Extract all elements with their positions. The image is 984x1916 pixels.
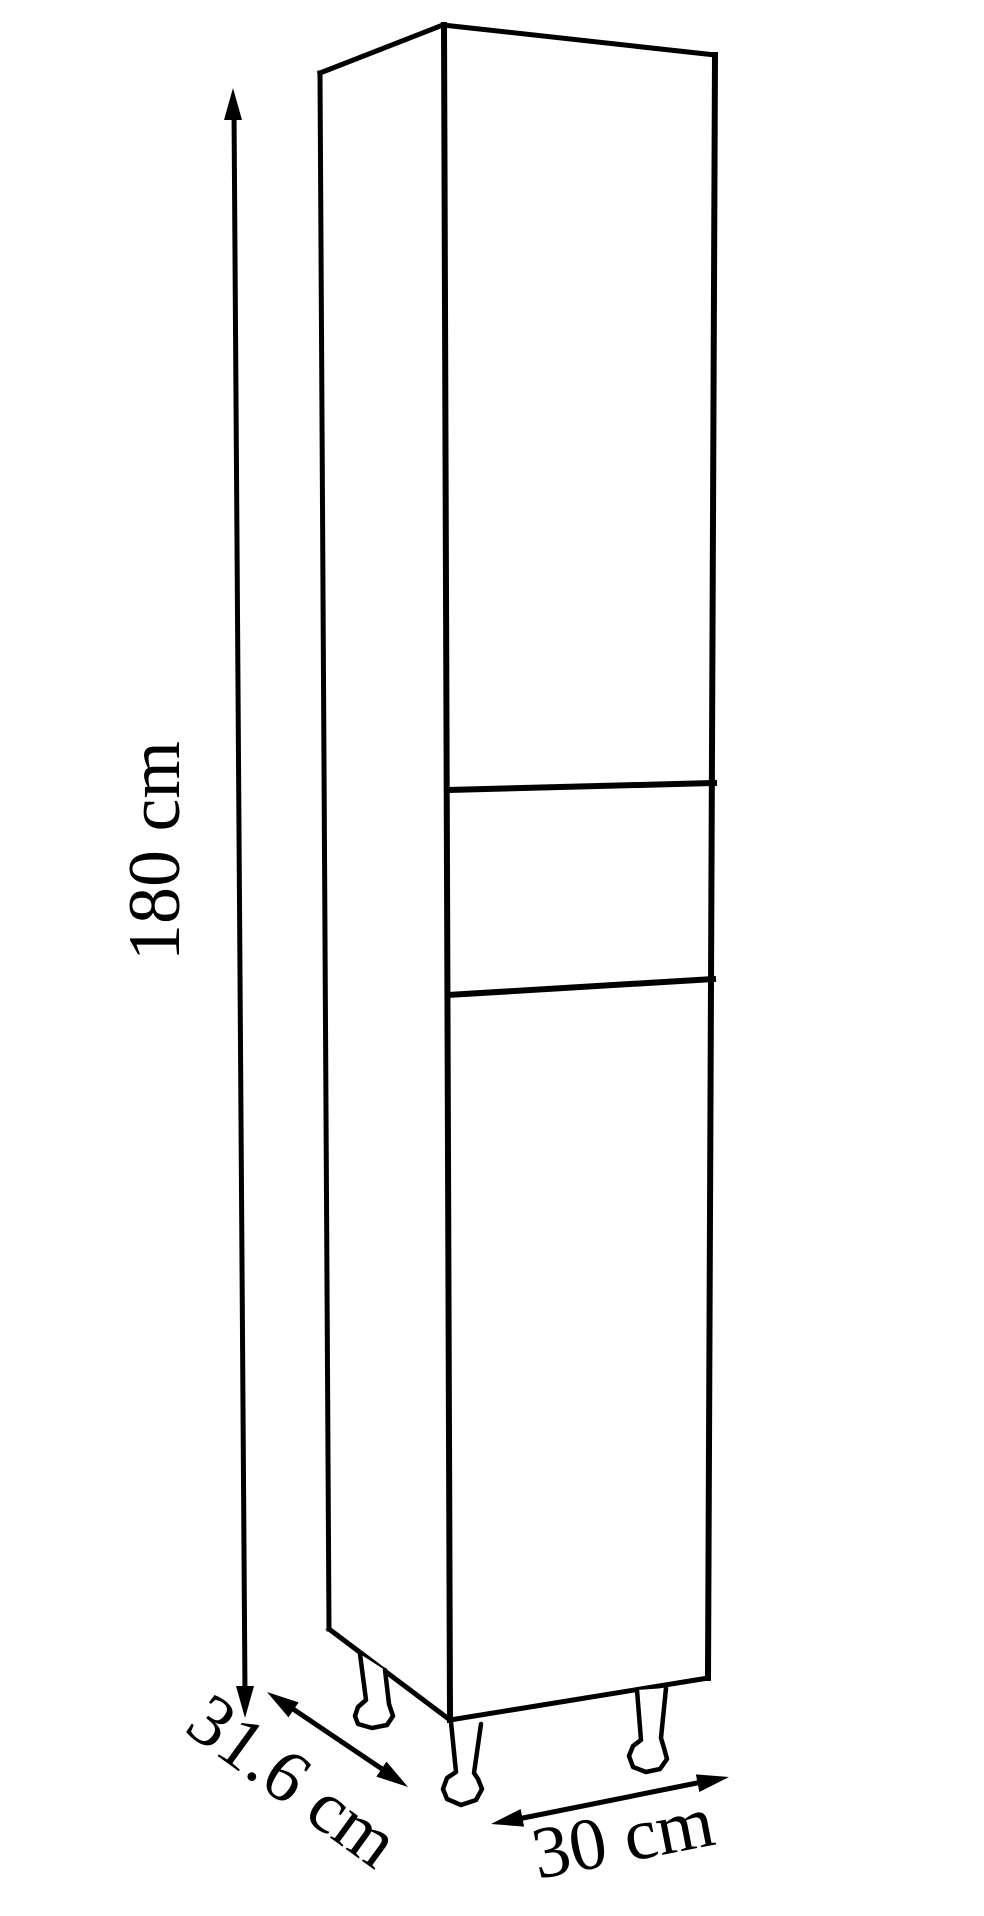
drawer-divider-lower-line <box>448 979 713 995</box>
dimension-diagram: 180 cm 31.6 cm 30 cm <box>0 0 984 1916</box>
front-left-leg <box>443 1722 482 1805</box>
cabinet-back-left-edge <box>320 73 329 1629</box>
height-arrow-line <box>234 110 245 1695</box>
cabinet-bottom-front-edge <box>450 1678 708 1720</box>
height-dimension-label: 180 cm <box>118 741 192 961</box>
depth-arrow-head-left <box>267 1692 299 1717</box>
cabinet-top-left-edge <box>320 25 443 73</box>
front-right-leg <box>629 1688 667 1772</box>
height-dimension-arrow <box>224 88 254 1718</box>
cabinet-front-right-edge <box>708 55 715 1678</box>
width-arrow-head-left <box>491 1809 524 1827</box>
cabinet-body <box>320 25 715 1720</box>
height-arrow-head-top <box>224 88 242 120</box>
back-left-leg <box>355 1654 393 1728</box>
cabinet-front-left-edge <box>444 25 450 1720</box>
drawer-divider-upper-line <box>447 783 714 790</box>
cabinet-top-front-edge <box>443 25 715 55</box>
